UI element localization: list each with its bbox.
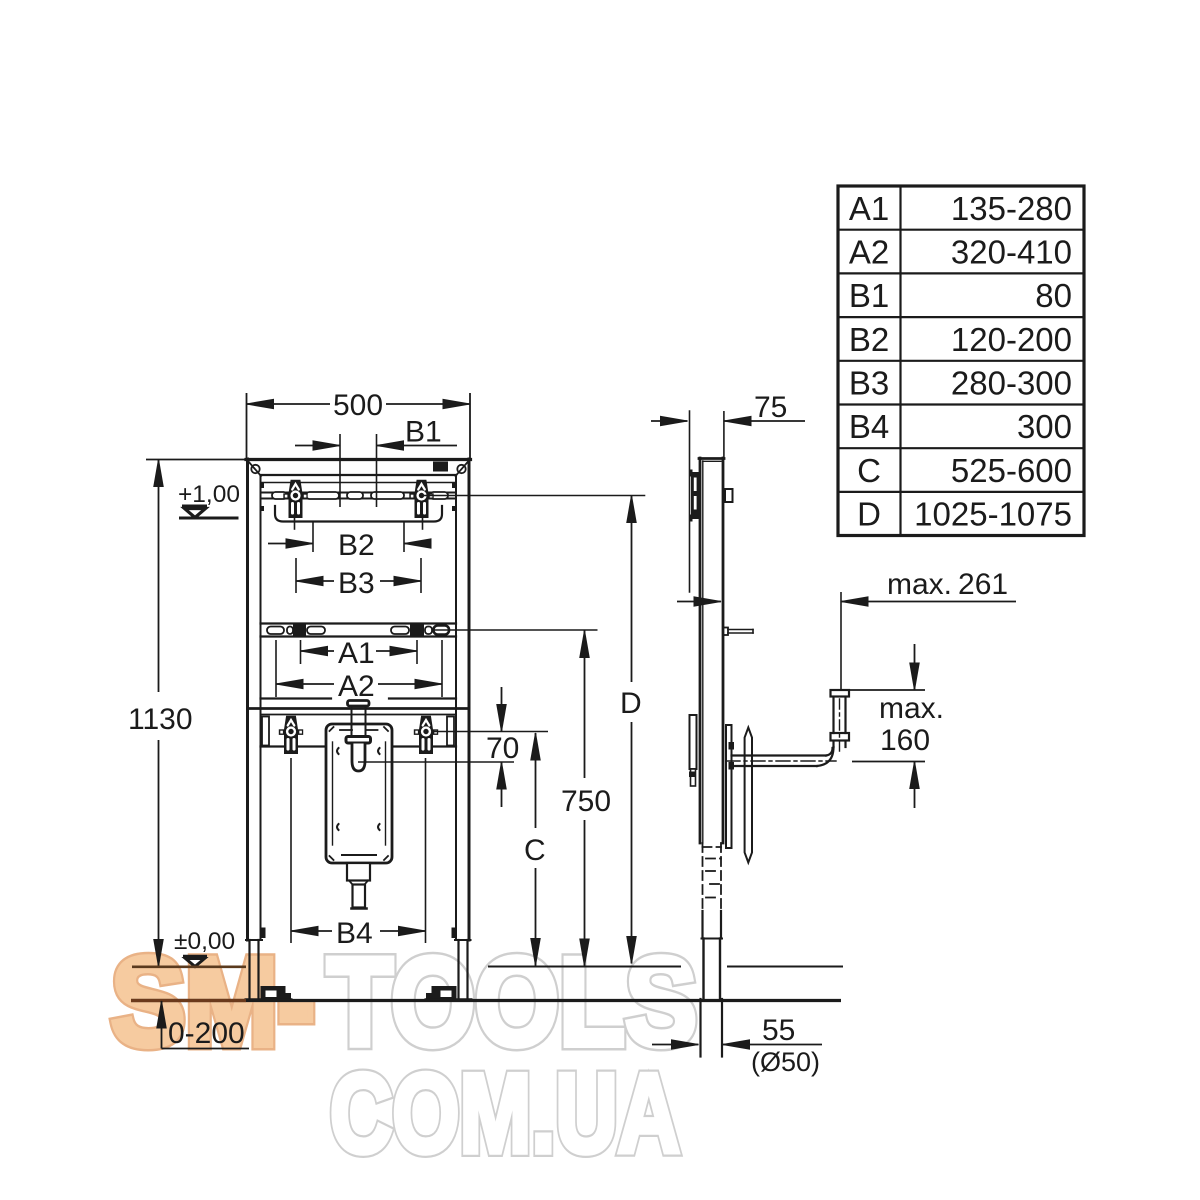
svg-text:280-300: 280-300	[951, 365, 1072, 402]
svg-text:500: 500	[333, 389, 383, 422]
svg-text:C: C	[857, 452, 881, 489]
svg-text:80: 80	[1035, 277, 1072, 314]
svg-text:D: D	[620, 687, 642, 720]
svg-text:(Ø50): (Ø50)	[751, 1047, 820, 1077]
svg-text:70: 70	[486, 732, 519, 765]
svg-text:160: 160	[880, 724, 930, 757]
svg-text:750: 750	[561, 785, 611, 818]
svg-text:B4: B4	[336, 917, 373, 950]
svg-text:D: D	[857, 496, 881, 533]
svg-text:max. 261: max. 261	[887, 568, 1008, 601]
svg-text:120-200: 120-200	[951, 321, 1072, 358]
svg-text:300: 300	[1017, 408, 1072, 445]
svg-text:B3: B3	[338, 567, 375, 600]
svg-text:C: C	[524, 834, 546, 867]
svg-text:1025-1075: 1025-1075	[914, 496, 1072, 533]
svg-text:75: 75	[754, 391, 787, 424]
svg-text:+1,00: +1,00	[178, 481, 240, 508]
svg-text:525-600: 525-600	[951, 452, 1072, 489]
svg-text:B1: B1	[849, 277, 889, 314]
svg-text:B3: B3	[849, 365, 889, 402]
svg-text:max.: max.	[879, 692, 944, 725]
svg-text:A1: A1	[849, 190, 889, 227]
svg-text:135-280: 135-280	[951, 190, 1072, 227]
svg-text:1130: 1130	[128, 703, 193, 736]
svg-text:A2: A2	[849, 234, 889, 271]
svg-text:B1: B1	[405, 416, 442, 449]
svg-text:55: 55	[762, 1014, 795, 1047]
svg-text:A1: A1	[338, 637, 375, 670]
svg-text:B2: B2	[849, 321, 889, 358]
svg-text:0-200: 0-200	[168, 1017, 245, 1050]
svg-text:B2: B2	[338, 529, 375, 562]
svg-text:A2: A2	[338, 670, 375, 703]
svg-text:±0,00: ±0,00	[174, 928, 235, 955]
svg-text:B4: B4	[849, 408, 889, 445]
svg-text:COM.UA: COM.UA	[330, 1051, 680, 1176]
svg-text:320-410: 320-410	[951, 234, 1072, 271]
